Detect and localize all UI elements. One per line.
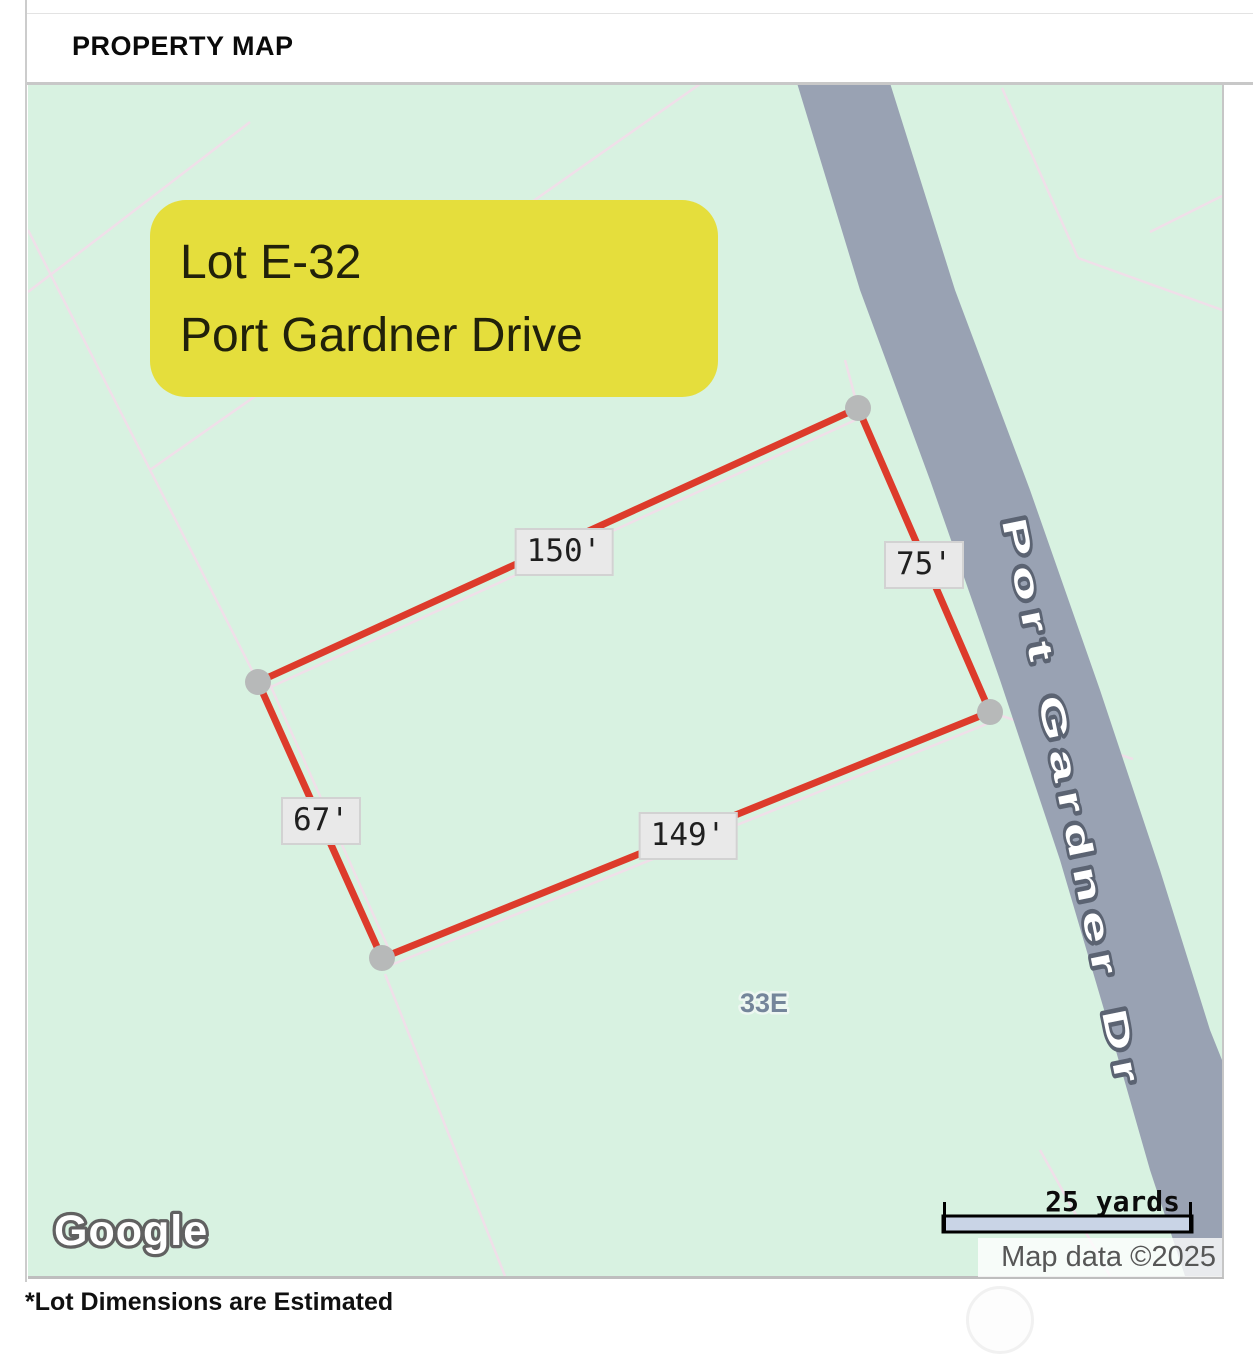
lot-callout-street: Port Gardner Drive [180, 299, 708, 372]
google-logo: Google [54, 1207, 208, 1255]
lot-callout-id: Lot E-32 [180, 226, 708, 299]
corner-marker-east [977, 699, 1003, 725]
dimension-label-northwest: 150' [515, 528, 614, 576]
dimension-label-northeast: 75' [884, 541, 964, 589]
property-map-canvas: Port Gardner Dr 33E Google 25 yards Lot … [28, 85, 1224, 1279]
dimensions-disclaimer: *Lot Dimensions are Estimated [25, 1288, 393, 1317]
page-left-border [25, 0, 27, 1282]
page-title: PROPERTY MAP [72, 31, 294, 62]
lot-callout: Lot E-32 Port Gardner Drive [150, 200, 718, 397]
property-outline [258, 408, 990, 958]
corner-marker-west [245, 669, 271, 695]
corner-marker-north [845, 395, 871, 421]
dimension-label-southeast: 149' [639, 812, 738, 860]
map-attribution: Map data ©2025 [978, 1238, 1222, 1277]
dimension-label-southwest: 67' [281, 797, 361, 845]
corner-marker-south [369, 945, 395, 971]
scale-bar-label: 25 yards [1045, 1185, 1180, 1218]
watermark-circle [966, 1286, 1034, 1354]
map-scale-bar: 25 yards [943, 1185, 1192, 1232]
parcel-id-label: 33E [740, 988, 788, 1018]
property-map-header: PROPERTY MAP [27, 13, 1253, 83]
road-shape [797, 85, 1222, 1276]
